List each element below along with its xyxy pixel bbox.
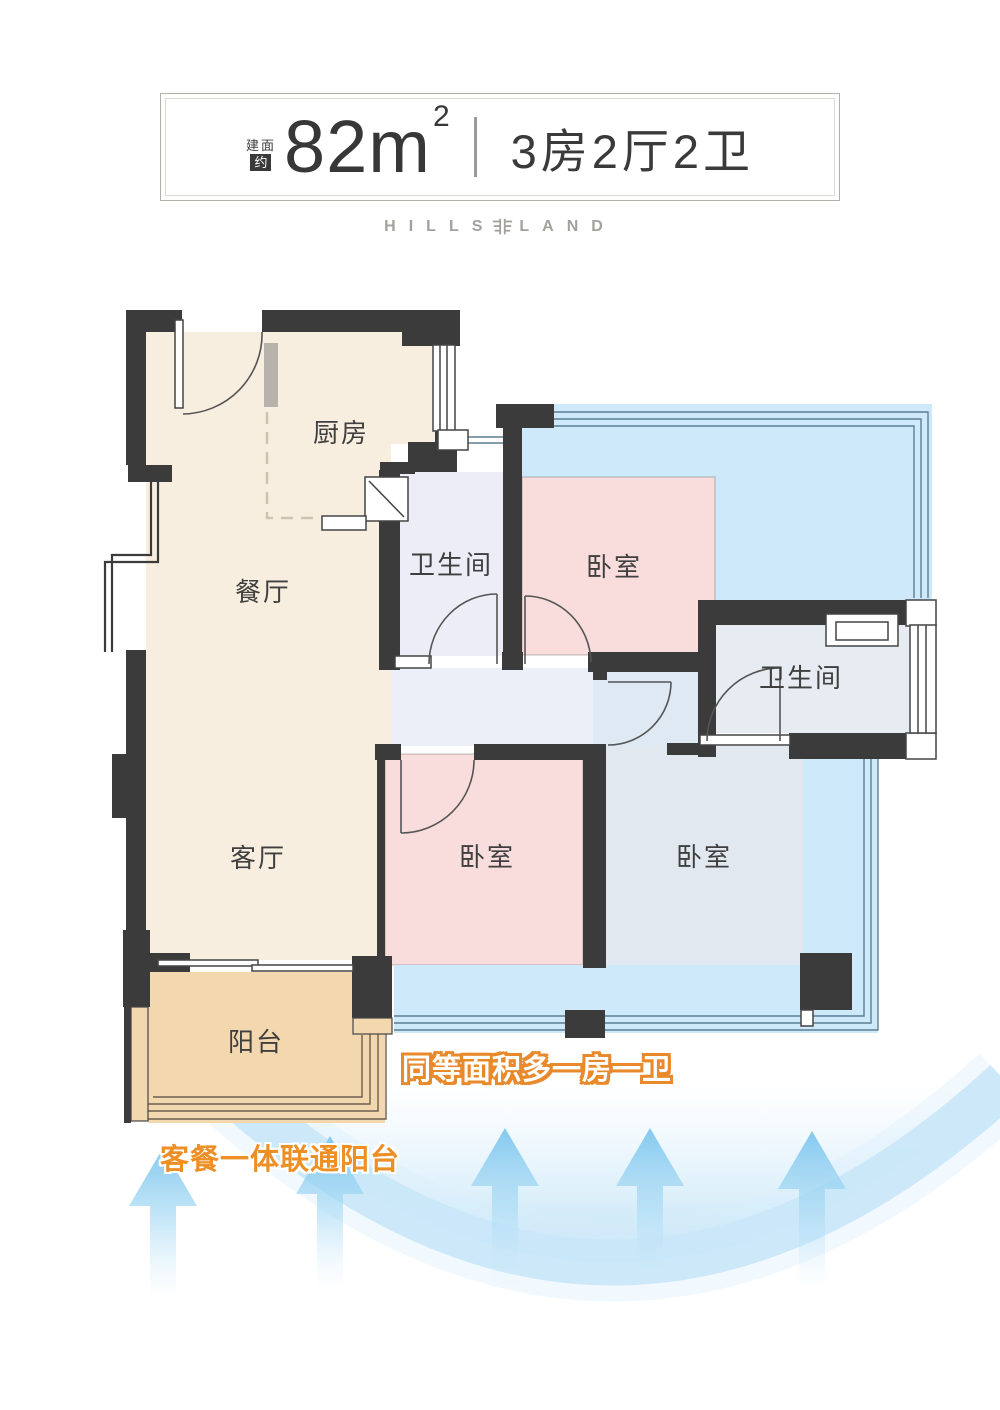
bath2-threshold — [700, 735, 790, 745]
poster-canvas: 建面 约 82 m 2 3房2厅2卫 HILLS LAND — [0, 0, 1000, 1410]
label-bedroom3: 卧室 — [676, 842, 732, 872]
label-bedroom1: 卧室 — [586, 552, 642, 582]
label-kitchen: 厨房 — [313, 418, 369, 448]
label-living: 客厅 — [230, 843, 286, 873]
label-dining: 餐厅 — [235, 577, 291, 607]
small-white-tab — [801, 1010, 813, 1026]
label-bedroom2: 卧室 — [459, 842, 515, 872]
entry-door-leaf — [175, 320, 183, 408]
window-corner-block — [906, 600, 936, 626]
hallway-area — [391, 668, 593, 746]
floor-plan: 厨房 餐厅 客厅 阳台 卫生间 卧室 卫生间 卧室 卧室 — [0, 0, 1000, 1410]
bath2-window — [910, 625, 936, 733]
hallway-area-blue — [593, 668, 698, 746]
bath1-half-wall — [395, 656, 431, 668]
annotation-balcony: 客餐一体联通阳台 — [160, 1136, 400, 1178]
sliding-door-leaf — [252, 965, 353, 971]
annotation-upgrade: 同等面积多一房一卫 — [402, 1046, 672, 1088]
label-bath1: 卫生间 — [409, 550, 493, 580]
window-corner-block — [906, 733, 936, 759]
kitchen-pillar — [264, 343, 278, 407]
sliding-door-leaf — [158, 960, 258, 966]
label-bath2: 卫生间 — [759, 663, 843, 693]
label-balcony: 阳台 — [228, 1027, 284, 1057]
alt-layout-strip-right — [803, 757, 878, 965]
